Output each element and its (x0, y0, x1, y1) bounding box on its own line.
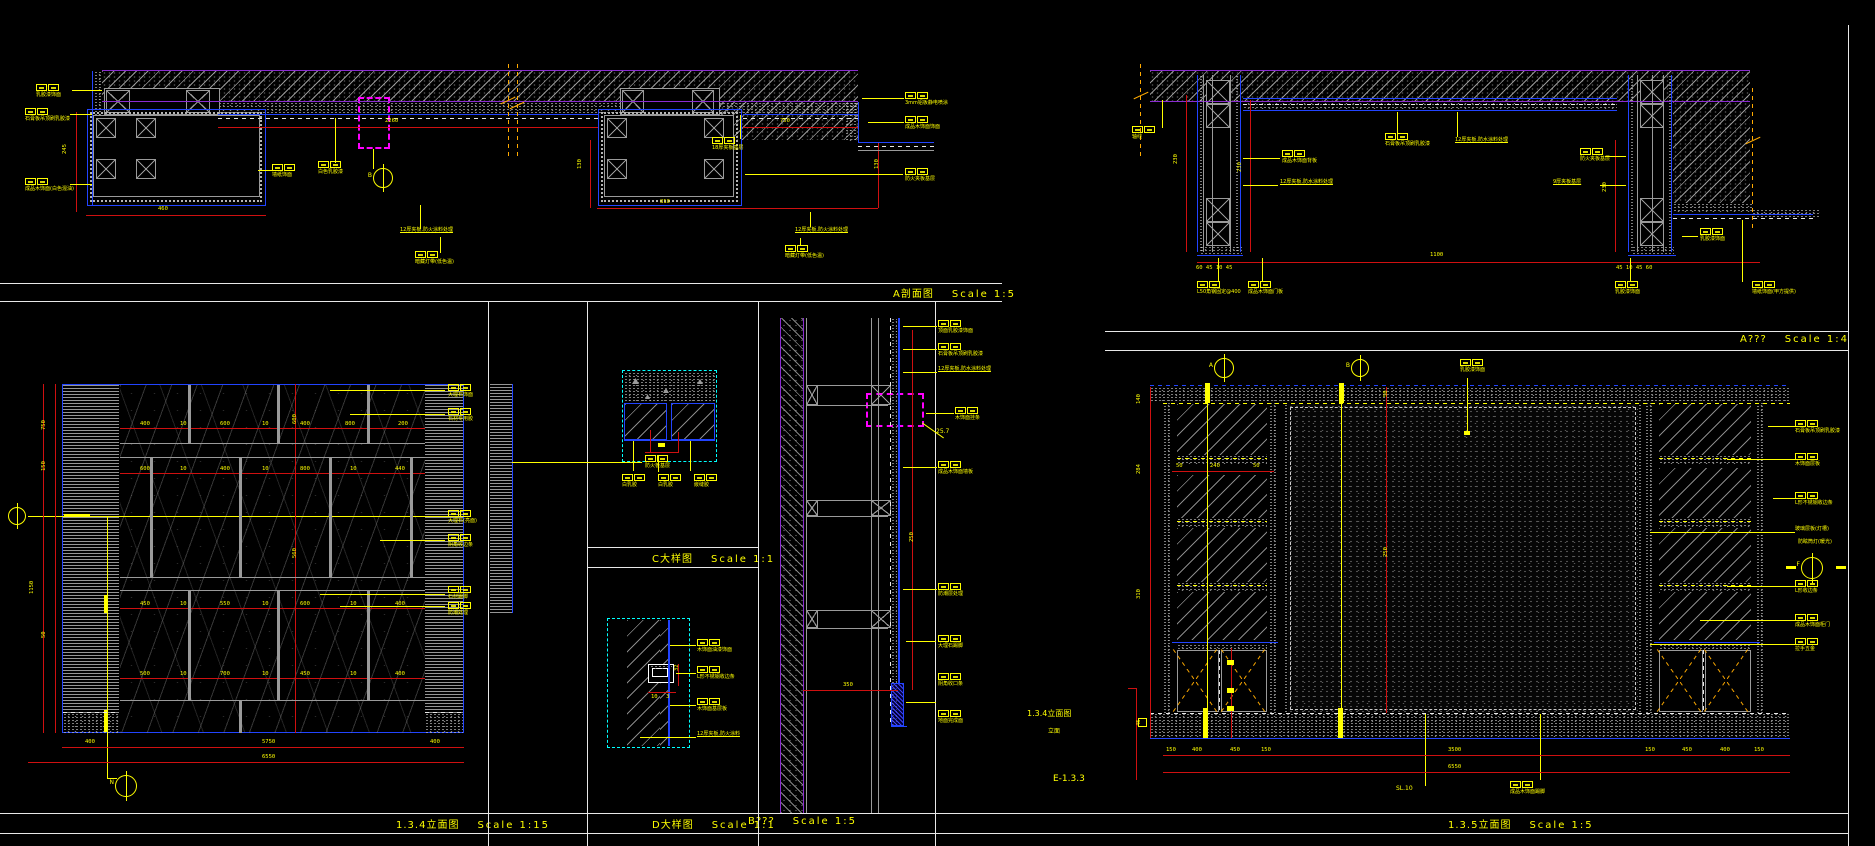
dimension-text: 600 (292, 414, 298, 424)
dimension-text: 10 (180, 601, 187, 607)
drawing-line (1230, 75, 1231, 252)
annotation-text: 乳胶漆饰面 (1460, 367, 1485, 373)
tag-code-box (1795, 638, 1806, 645)
annotation-text: 白乳胶 (622, 482, 645, 488)
dimension-text: 800 (345, 421, 355, 427)
drawing-line (277, 385, 280, 443)
tag-code-box (1807, 638, 1818, 645)
drawing-line (120, 443, 425, 444)
material-tag (697, 639, 732, 646)
tag-code-box (785, 245, 796, 252)
drawing-line (1150, 385, 1790, 386)
annotation-text: 防眩筒灯(暖光) (1798, 539, 1832, 545)
material-tag (1795, 580, 1818, 587)
tag-code-box (1209, 281, 1220, 288)
drawing-line (1671, 75, 1672, 252)
annotation-text: 防火夹板基层 (905, 176, 935, 182)
drawing-line (120, 700, 425, 701)
tag-code-box (967, 407, 978, 414)
tag-code-box (1807, 614, 1818, 621)
drawing-line (188, 385, 191, 443)
tag-code-box (37, 178, 48, 185)
drawing-line (1243, 158, 1280, 159)
drawing-line (218, 127, 598, 128)
annotation-text: 乳胶漆饰面 (1700, 236, 1725, 242)
drawing-line (1250, 100, 1251, 252)
drawing-line (903, 349, 937, 350)
hatch-region (87, 109, 266, 206)
drawing-line (1467, 378, 1468, 433)
drawing-line (806, 385, 888, 386)
annotation-text: 成品木饰面(白色混油) (25, 186, 74, 192)
annotation-text: 防潮层处理 (938, 591, 963, 597)
material-tag (1460, 359, 1485, 366)
drawing-line (1673, 214, 1813, 215)
drawing-line (1243, 185, 1278, 186)
drawing-line (1650, 644, 1795, 645)
annotation-label: L50角钢固定@400 (1197, 281, 1241, 295)
annotation-text: 防火夹板基层 (1580, 156, 1610, 162)
drawing-line (488, 301, 489, 846)
annotation-label: 木饰面挂条 (955, 407, 980, 421)
hatch-region (1673, 203, 1752, 213)
dimension-text: 400 (85, 739, 95, 745)
drawing-line (1752, 88, 1753, 228)
dimension-text: 50 (1253, 463, 1260, 469)
dimension-text: 450 (1682, 747, 1692, 753)
annotation-text: 地面完成面 (938, 718, 963, 724)
dimension-text: 10 (262, 421, 269, 427)
annotation-label: 乳胶漆饰面 (1615, 281, 1640, 295)
drawing-line (1673, 218, 1813, 219)
drawing-line (648, 692, 676, 693)
dimension-text: 450 (300, 671, 310, 677)
material-tag (938, 635, 963, 642)
drawing-line (1227, 688, 1234, 693)
annotation-text: 墙纸饰面 (272, 172, 295, 178)
dimension-text: 600 (220, 421, 230, 427)
hatch-region (598, 109, 742, 206)
annotation-label: 顶面乳胶漆饰面 (938, 320, 973, 334)
annotation-label: 12厚夹板,防水涂料处理 (1280, 179, 1333, 185)
annotation-label: 乳胶漆饰面 (1700, 228, 1725, 242)
drawing-line (150, 457, 153, 577)
drawing-line (676, 673, 696, 674)
drawing-line (903, 372, 937, 373)
drawing-line (670, 645, 696, 646)
annotation-text: 木饰面层板 (1795, 461, 1820, 467)
annotation-label: 拉手五金 (1795, 638, 1818, 652)
drawing-line (803, 318, 804, 813)
material-tag (938, 461, 973, 468)
dimension-text: 250 (909, 532, 915, 542)
tag-code-box (709, 639, 720, 646)
drawing-line (806, 610, 888, 611)
section-marker: B (373, 168, 393, 188)
drawing-line (903, 589, 937, 590)
tag-code-box (460, 602, 471, 609)
drawing-line (1150, 387, 1151, 738)
annotation-text: 暗藏灯带(低色温) (785, 253, 824, 259)
section-marker-letter: N (110, 779, 115, 786)
material-tag (36, 84, 61, 91)
drawing-line (512, 384, 513, 613)
drawing-line (633, 441, 634, 471)
drawing-line (28, 762, 464, 763)
annotation-text: 成品木饰面墙板 (938, 469, 973, 475)
tag-code-box (330, 161, 341, 168)
drawing-line (1243, 98, 1617, 99)
annotation-label: 木饰面基层板 (697, 698, 727, 712)
annotation-label: 墙纸饰面 (272, 164, 295, 178)
blocking-x-box (871, 610, 891, 628)
tag-code-box (694, 474, 705, 481)
dimension-text: 150 (41, 461, 47, 471)
hatch-region (1659, 592, 1751, 640)
dimension-text: 400 (220, 466, 230, 472)
drawing-line (1663, 75, 1664, 252)
dimension-text: 50 (1383, 390, 1389, 397)
drawing-line (1464, 431, 1470, 435)
drawing-line (508, 64, 509, 156)
drawing-line (806, 318, 807, 813)
annotation-text: 拉手五金 (1795, 646, 1818, 652)
tag-code-box (460, 510, 471, 517)
panel-title-elevation-134: 1.3.4立面图Scale 1:15 (396, 816, 550, 831)
dimension-text: 550 (220, 601, 230, 607)
hatch-region (425, 713, 463, 733)
drawing-line (1742, 220, 1743, 282)
annotation-label: 石膏板吊顶刷乳胶漆 (1385, 133, 1430, 147)
hatch-region (1659, 528, 1751, 582)
drawing-line (1848, 25, 1849, 846)
blocking-x-box (1206, 198, 1230, 222)
drawing-line (1203, 75, 1204, 252)
hatch-region (1200, 246, 1242, 254)
material-tag (938, 710, 963, 717)
drawing-line (1163, 755, 1790, 756)
hatch-region (1177, 475, 1267, 518)
drawing-line (239, 457, 242, 577)
hatch-region (1659, 518, 1751, 528)
drawing-line (858, 142, 934, 143)
hatch-region (1150, 713, 1790, 737)
drawing-line (1682, 236, 1698, 237)
drawing-line (1136, 688, 1137, 780)
drawing-line (1207, 403, 1208, 713)
drawing-line (1163, 403, 1790, 404)
drawing-line (862, 98, 904, 99)
tag-code-box (448, 384, 459, 391)
annotation-text: L形不锈钢收边条 (697, 674, 735, 680)
note-text: 25.7 (936, 428, 949, 435)
tag-code-box (1472, 359, 1483, 366)
dimension-text: 240 (1210, 463, 1220, 469)
tag-code-box (938, 673, 949, 680)
hatch-region (1177, 528, 1267, 582)
drawing-line (120, 577, 425, 578)
drawing-line (1341, 403, 1342, 713)
tag-code-box (938, 710, 949, 717)
title-scale: Scale 1:5 (793, 816, 857, 827)
drawing-line (86, 215, 266, 216)
annotation-label: 木饰面油漆饰面 (697, 639, 732, 653)
drawing-line (1227, 706, 1234, 711)
drawing-line (1150, 738, 1790, 739)
drawing-line (1700, 620, 1795, 621)
drawing-line (1243, 110, 1617, 111)
annotation-text: 白乳胶 (658, 482, 681, 488)
annotation-text: 石膏板吊顶刷乳胶漆 (938, 351, 983, 357)
dimension-text: 400 (395, 601, 405, 607)
tag-code-box (938, 461, 949, 468)
tag-code-box (938, 635, 949, 642)
dimension-text: 440 (395, 466, 405, 472)
title-scale: Scale 1:4 (1785, 334, 1849, 345)
drawing-line (1425, 714, 1426, 786)
drawing-line (587, 567, 758, 568)
drawing-line (1727, 459, 1795, 460)
annotation-label: 12厚夹板,防火涂料处理 (400, 227, 453, 233)
dimension-text: 130 (577, 159, 583, 169)
tag-code-box (1795, 614, 1806, 621)
drawing-line (1128, 688, 1137, 689)
drawing-line (70, 114, 92, 115)
annotation-text: 18厚夹板基层 (712, 145, 743, 151)
annotation-label: 大理石(亮面) (448, 510, 477, 524)
drawing-line (0, 813, 1848, 814)
annotation-label: 防潮处理 (448, 602, 471, 616)
annotation-label: 乳胶漆饰面 (36, 84, 61, 98)
drawing-line (1177, 458, 1267, 459)
drawing-line (1540, 714, 1541, 780)
dimension-text: 10 (350, 671, 357, 677)
hatch-region (425, 385, 463, 713)
annotation-text: 12厚夹板,防火涂料处理 (795, 227, 848, 233)
annotation-label: 成品木饰面背板 (1282, 150, 1317, 164)
drawing-line (740, 115, 741, 139)
annotation-label: 石膏板吊顶刷乳胶漆 (938, 343, 983, 357)
material-tag (658, 474, 681, 481)
material-tag (694, 474, 717, 481)
tag-code-box (448, 534, 459, 541)
tag-code-box (284, 164, 295, 171)
dimension-text: 600 (140, 466, 150, 472)
tag-code-box (645, 455, 656, 462)
tag-code-box (1795, 453, 1806, 460)
hatch-region (1659, 650, 1703, 712)
dimension-text: 150 (1754, 747, 1764, 753)
annotation-text: 12厚夹板,防水涂料处理 (1280, 179, 1333, 185)
annotation-label: 防潮层处理 (938, 583, 963, 597)
drawing-line (658, 443, 665, 447)
annotation-label: L形收边条 (1795, 580, 1818, 594)
material-tag (905, 92, 948, 99)
cad-sheet: A剖面图Scale 1:5 A???Scale 1:4 1.3.4立面图Scal… (0, 0, 1875, 846)
annotation-label: 石膏板吊顶刷乳胶漆 (25, 108, 70, 122)
hatch-region (1659, 468, 1751, 518)
dimension-text: 284 (1136, 464, 1142, 474)
drawing-line (1786, 566, 1796, 569)
annotation-label: 轴线 (1132, 126, 1155, 140)
drawing-line (878, 318, 879, 813)
material-tag (697, 666, 735, 673)
hatch-region (624, 372, 715, 402)
material-tag (1132, 126, 1155, 133)
tag-code-box (1510, 781, 1521, 788)
material-tag (318, 161, 343, 168)
drawing-line (587, 547, 758, 548)
tag-code-box (1397, 133, 1408, 140)
tag-code-box (622, 474, 633, 481)
drawing-line (1186, 95, 1187, 252)
tag-code-box (938, 583, 949, 590)
drawing-line (1227, 660, 1234, 665)
drawing-line (0, 283, 1002, 284)
section-marker-letter: F (1797, 561, 1800, 568)
annotation-text: 3mm铝板静电喷涂 (905, 100, 948, 106)
tag-code-box (448, 586, 459, 593)
annotation-label: 成品木饰面门板 (1248, 281, 1283, 295)
blocking-x-box (871, 500, 891, 516)
drawing-line (806, 516, 888, 517)
tag-code-box (25, 108, 36, 115)
material-tag (785, 245, 824, 252)
drawing-line (1205, 383, 1210, 403)
material-tag (448, 408, 473, 415)
dimension-text: 2260 (385, 118, 398, 124)
drawing-line (758, 301, 759, 846)
title-text: 1.3.4立面图 (396, 820, 459, 831)
drawing-line (645, 452, 679, 453)
material-tag (955, 407, 980, 414)
drawing-line (1768, 426, 1795, 427)
annotation-label: 嵌缝胶 (694, 474, 717, 488)
drawing-line (258, 170, 272, 171)
note-text: 1.3.4立面图 (1027, 708, 1071, 719)
blocking-x-box (1206, 104, 1230, 128)
tag-code-box (25, 178, 36, 185)
annotation-text: 成品木饰面柜门 (1795, 622, 1830, 628)
material-tag (1795, 638, 1818, 645)
annotation-text: 防火板基层 (645, 463, 670, 469)
drawing-line (517, 64, 518, 156)
tag-code-box (48, 84, 59, 91)
drawing-line (668, 620, 670, 746)
tag-code-box (1700, 228, 1711, 235)
section-marker-letter: A (1209, 362, 1213, 369)
drawing-line (350, 414, 445, 415)
drawing-line (891, 726, 907, 727)
material-tag (1197, 281, 1241, 288)
dimension-text: 45 10 45 60 (1616, 265, 1652, 271)
title-scale: Scale 1:5 (1529, 820, 1593, 831)
material-tag (272, 164, 295, 171)
drawing-line (597, 208, 878, 209)
blocking-x-box (806, 385, 818, 405)
drawing-line (335, 118, 336, 163)
annotation-text: 阴角收口条 (938, 681, 963, 687)
annotation-text: 石膏板吊顶刷乳胶漆 (25, 116, 70, 122)
tag-code-box (950, 461, 961, 468)
drawing-line (898, 318, 900, 684)
dimension-text: 400 (430, 739, 440, 745)
tag-code-box (797, 245, 808, 252)
tag-code-box (950, 673, 961, 680)
tag-code-box (460, 586, 471, 593)
annotation-text: 石膏板吊顶刷乳胶漆 (1795, 428, 1840, 434)
drawing-line (1262, 258, 1263, 282)
annotation-label: 玻璃层板(灯槽) (1795, 526, 1829, 532)
dimension-text: 150 (1645, 747, 1655, 753)
drawing-line (1172, 642, 1278, 643)
annotation-label: 成品木饰面柜门 (1795, 614, 1830, 628)
dimension-text: 560 (292, 548, 298, 558)
tag-code-box (1807, 453, 1818, 460)
drawing-line (72, 90, 102, 91)
annotation-label: L形不锈钢收边条 (697, 666, 735, 680)
dimension-text: 6550 (262, 754, 275, 760)
annotation-text: 成品木饰面踢脚 (1510, 789, 1545, 795)
dimension-text: 310 (1136, 589, 1142, 599)
material-tag (1795, 492, 1833, 499)
tag-code-box (712, 137, 723, 144)
material-tag (1580, 148, 1610, 155)
annotation-text: 玻璃层板(灯槽) (1795, 526, 1829, 532)
dimension-text: 3500 (1448, 747, 1461, 753)
drawing-line (410, 457, 413, 577)
annotation-label: 9厚夹板基层 (1553, 179, 1581, 185)
drawing-line (1836, 566, 1846, 569)
tag-code-box (950, 343, 961, 350)
tag-code-box (1712, 228, 1723, 235)
tag-code-box (697, 639, 708, 646)
drawing-line (329, 457, 332, 577)
dimension-text: 50 (1176, 463, 1183, 469)
drawing-line (650, 430, 651, 452)
drawing-line (425, 712, 463, 713)
annotation-text: 12厚夹板,防火涂料处理 (400, 227, 453, 233)
annotation-label: 成品木饰面饰面 (905, 116, 940, 130)
tag-code-box (460, 534, 471, 541)
title-text: B??? (748, 816, 775, 827)
drawing-line (102, 70, 858, 71)
drawing-line (120, 473, 425, 474)
title-scale: Scale 1:5 (952, 289, 1016, 300)
drawing-line (104, 595, 108, 613)
tag-code-box (709, 698, 720, 705)
material-tag (1282, 150, 1317, 157)
hatch-region (660, 620, 668, 746)
annotation-text: 12厚夹板,防水涂料处理 (1455, 137, 1508, 143)
dimension-text: 450 (140, 601, 150, 607)
drawing-line (1177, 521, 1267, 522)
annotation-label: 木饰面层板 (1795, 453, 1820, 467)
section-marker-letter: B (368, 172, 372, 179)
title-text: D大样图 (652, 820, 694, 831)
material-tag (905, 168, 935, 175)
tag-code-box (427, 251, 438, 258)
drawing-line (0, 833, 1848, 834)
hatch-region (490, 384, 512, 613)
annotation-label: 防火板基层 (645, 455, 670, 469)
drawing-line (330, 390, 445, 391)
material-tag (1795, 453, 1820, 460)
drawing-line (1197, 75, 1198, 252)
dimension-text: 450 (1230, 747, 1240, 753)
annotation-label: 防火夹板基层 (905, 168, 935, 182)
dimension-text: 250 (1383, 547, 1389, 557)
